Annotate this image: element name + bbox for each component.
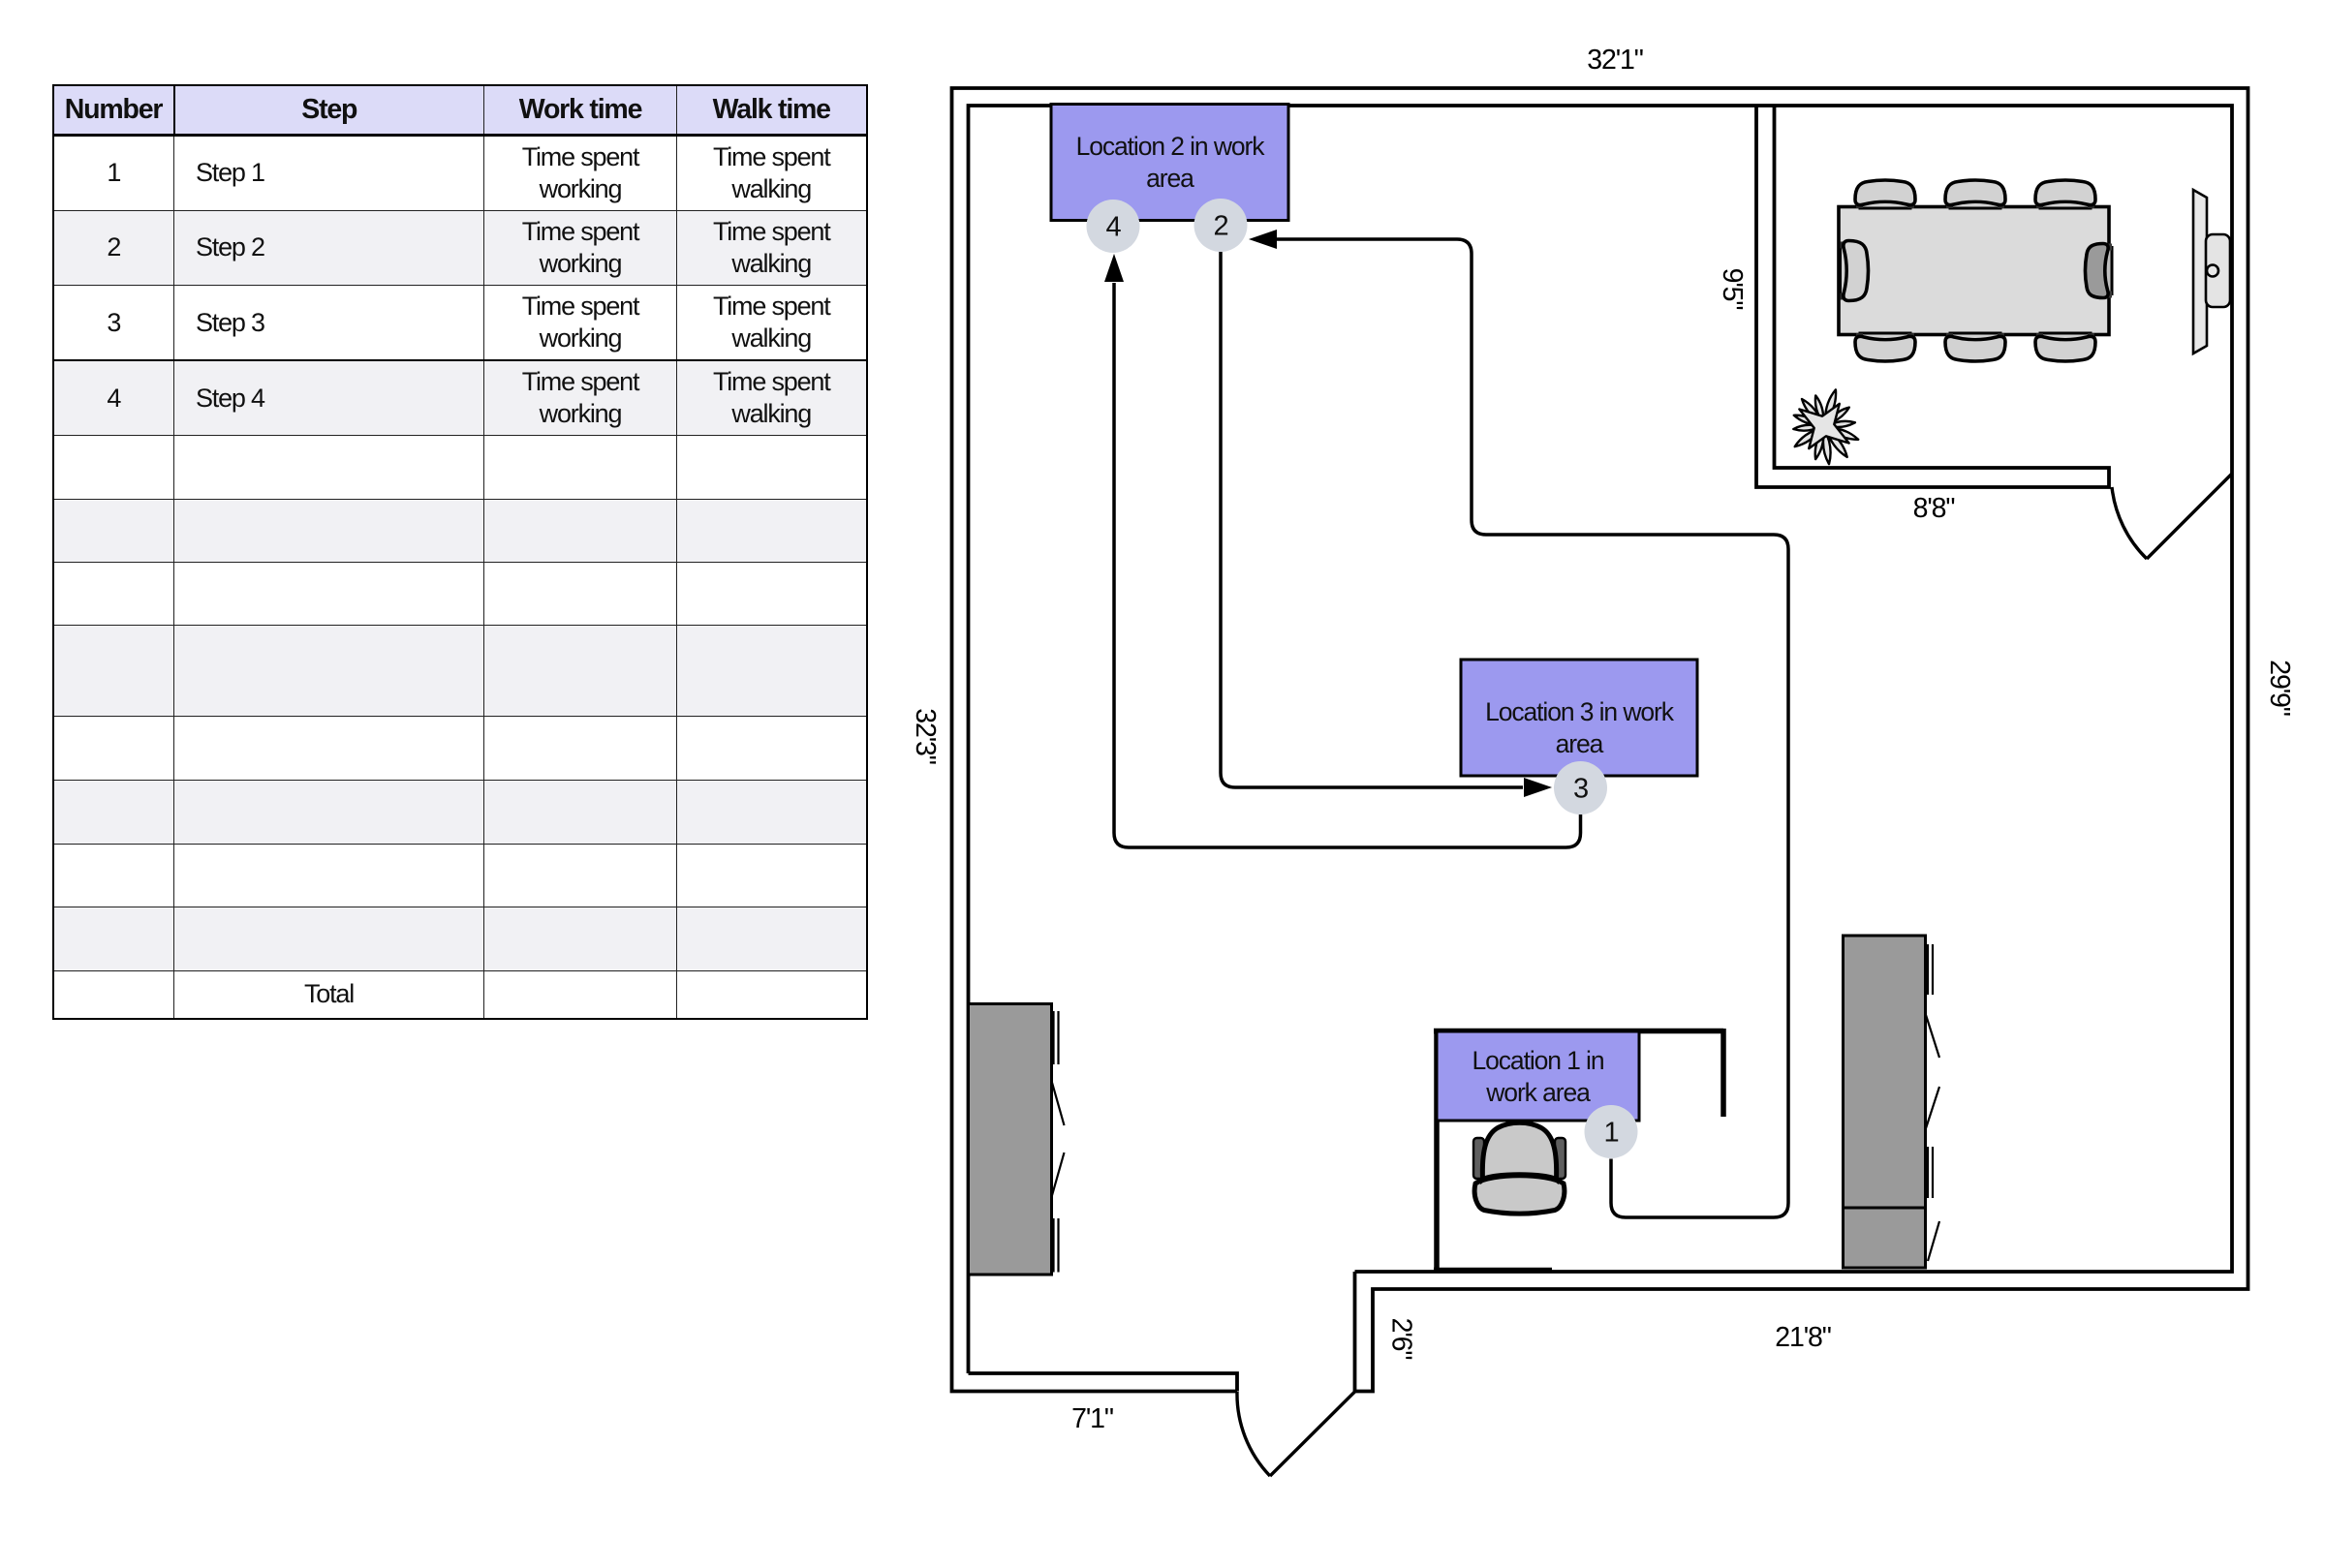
svg-text:3: 3 [1573, 774, 1588, 805]
svg-text:1: 1 [1603, 1118, 1618, 1149]
svg-text:area: area [1556, 729, 1604, 758]
svg-text:8'8": 8'8" [1913, 493, 1955, 524]
svg-text:7'1": 7'1" [1071, 1403, 1113, 1434]
svg-text:4: 4 [1105, 212, 1121, 243]
svg-text:Location 2 in work: Location 2 in work [1076, 132, 1266, 161]
svg-text:9'5": 9'5" [1717, 268, 1748, 310]
svg-text:32'3": 32'3" [910, 708, 941, 764]
svg-text:2'6": 2'6" [1386, 1318, 1417, 1360]
svg-text:Location 3 in work: Location 3 in work [1485, 697, 1675, 726]
svg-text:29'9": 29'9" [2264, 660, 2295, 716]
svg-text:32'1": 32'1" [1587, 45, 1643, 76]
svg-text:work area: work area [1485, 1078, 1591, 1107]
svg-text:area: area [1146, 164, 1194, 193]
svg-text:21'8": 21'8" [1775, 1322, 1831, 1353]
svg-text:2: 2 [1213, 211, 1227, 242]
svg-text:Location 1 in: Location 1 in [1472, 1046, 1604, 1075]
